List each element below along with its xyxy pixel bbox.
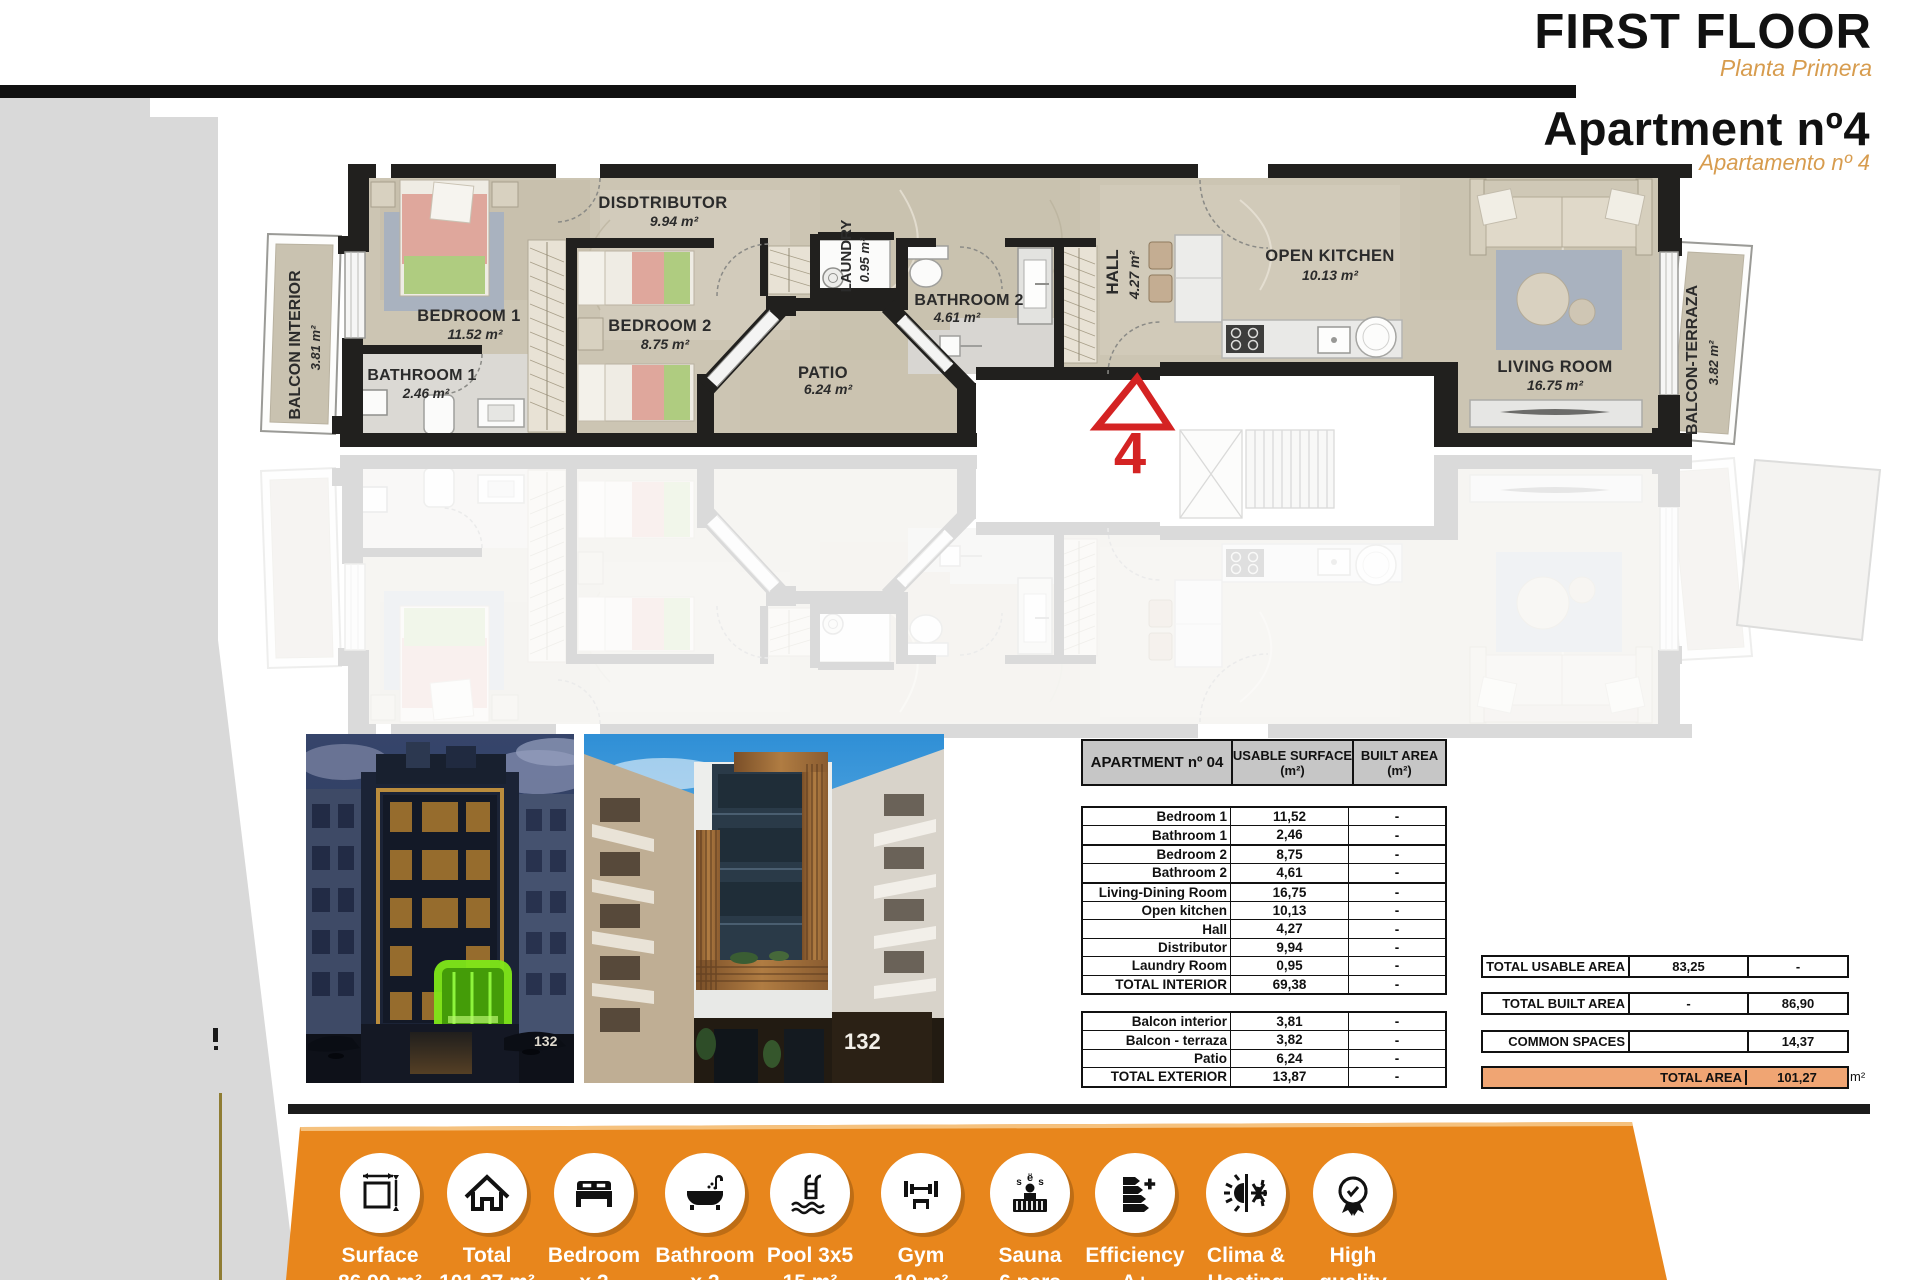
svg-text:x 2: x 2 xyxy=(690,1271,719,1280)
svg-text:BEDROOM 2: BEDROOM 2 xyxy=(608,317,712,335)
svg-text:0.95 m²: 0.95 m² xyxy=(857,237,872,282)
svg-text:BEDROOM 1: BEDROOM 1 xyxy=(417,307,521,325)
svg-text:101,27 m²: 101,27 m² xyxy=(439,1271,535,1280)
svg-text:Efficiency: Efficiency xyxy=(1085,1244,1185,1267)
svg-text:BATHROOM 1: BATHROOM 1 xyxy=(367,367,476,384)
svg-text:4.27 m²: 4.27 m² xyxy=(1126,251,1142,301)
svg-text:LIVING ROOM: LIVING ROOM xyxy=(1497,358,1612,376)
svg-text:x 2: x 2 xyxy=(579,1271,608,1280)
svg-text:132: 132 xyxy=(844,1029,881,1054)
svg-text:86,90 m²: 86,90 m² xyxy=(338,1271,422,1280)
svg-text:A+: A+ xyxy=(1121,1271,1148,1280)
svg-text:BALCON INTERIOR: BALCON INTERIOR xyxy=(287,270,304,420)
svg-text:LAUNDRY: LAUNDRY xyxy=(838,220,855,293)
svg-text:Sauna: Sauna xyxy=(998,1244,1061,1267)
svg-text:High: High xyxy=(1330,1244,1377,1267)
svg-text:2.46 m²: 2.46 m² xyxy=(402,386,450,401)
svg-text:Pool 3x5: Pool 3x5 xyxy=(767,1244,854,1267)
svg-text:16.75 m²: 16.75 m² xyxy=(1527,377,1583,393)
svg-text:Bedroom: Bedroom xyxy=(548,1244,640,1267)
svg-text:s: s xyxy=(1038,1177,1044,1188)
svg-text:DISDTRIBUTOR: DISDTRIBUTOR xyxy=(598,194,727,212)
svg-text:11.52 m²: 11.52 m² xyxy=(448,326,503,342)
svg-text:Total: Total xyxy=(463,1244,512,1267)
svg-text:OPEN KITCHEN: OPEN KITCHEN xyxy=(1265,247,1394,265)
svg-text:8.75 m²: 8.75 m² xyxy=(641,336,690,352)
svg-text:s: s xyxy=(1016,1177,1022,1188)
svg-text:3.82 m²: 3.82 m² xyxy=(1706,340,1721,385)
svg-text:Bathroom: Bathroom xyxy=(655,1244,754,1267)
svg-text:4.61 m²: 4.61 m² xyxy=(933,310,981,325)
svg-text:PATIO: PATIO xyxy=(798,364,848,382)
svg-text:Gym: Gym xyxy=(898,1244,945,1267)
svg-text:6 pers: 6 pers xyxy=(999,1271,1061,1280)
svg-text:BATHROOM 2: BATHROOM 2 xyxy=(914,292,1023,309)
svg-text:6.24 m²: 6.24 m² xyxy=(804,381,853,397)
svg-text:quality: quality xyxy=(1319,1271,1387,1280)
svg-text:Heating: Heating xyxy=(1207,1271,1284,1280)
svg-text:ё: ё xyxy=(1027,1172,1033,1184)
svg-text:10.13 m²: 10.13 m² xyxy=(1302,267,1358,283)
svg-text:10 m²: 10 m² xyxy=(894,1271,949,1280)
svg-text:3.81 m²: 3.81 m² xyxy=(308,325,323,370)
svg-text:132: 132 xyxy=(534,1033,558,1049)
svg-text:Clima &: Clima & xyxy=(1207,1244,1285,1267)
svg-text:4: 4 xyxy=(1114,421,1146,486)
svg-text:HALL: HALL xyxy=(1103,249,1122,294)
svg-text:9.94 m²: 9.94 m² xyxy=(650,213,699,229)
svg-text:15 m²: 15 m² xyxy=(783,1271,838,1280)
svg-text:BALCON-TERRAZA: BALCON-TERRAZA xyxy=(1684,284,1701,435)
svg-text:Surface: Surface xyxy=(341,1244,418,1267)
